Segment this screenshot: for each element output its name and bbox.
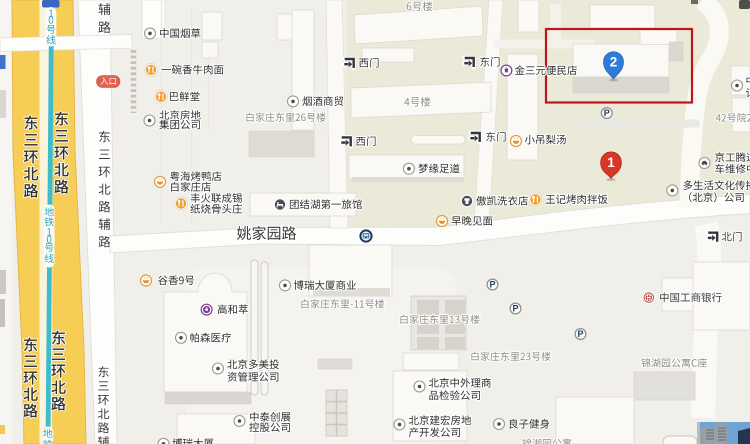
svg-text:P: P [577, 329, 583, 339]
svg-text:P: P [512, 304, 518, 314]
svg-text:P: P [604, 108, 610, 118]
svg-text:2: 2 [610, 54, 618, 69]
svg-text:P: P [489, 280, 495, 290]
svg-text:1: 1 [607, 155, 615, 170]
